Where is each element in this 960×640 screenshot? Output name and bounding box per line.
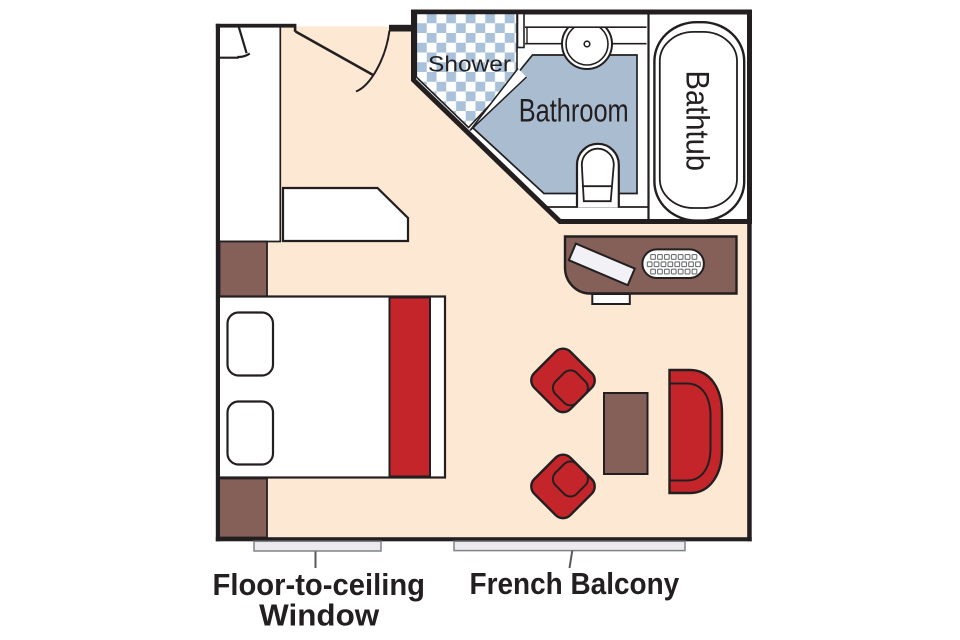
svg-text:Shower: Shower bbox=[428, 51, 511, 76]
svg-text:Bathroom: Bathroom bbox=[519, 92, 629, 128]
svg-text:Bathtub: Bathtub bbox=[680, 71, 716, 172]
svg-text:Window: Window bbox=[259, 598, 380, 633]
svg-text:French Balcony: French Balcony bbox=[470, 566, 680, 601]
